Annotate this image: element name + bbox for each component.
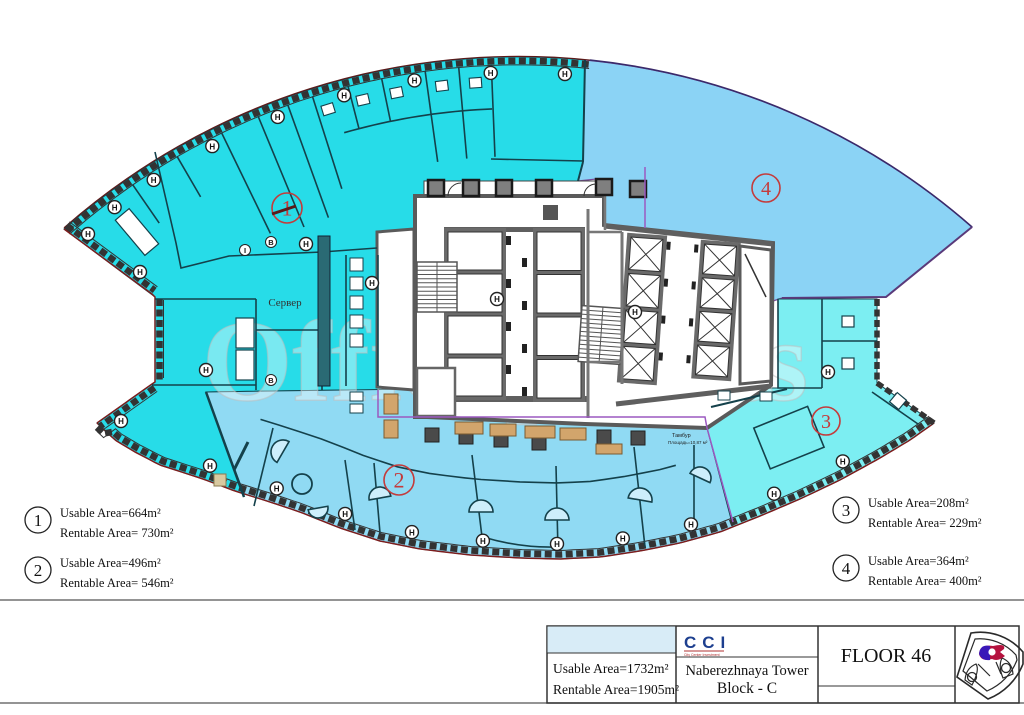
svg-text:Тамбур: Тамбур [672,433,691,439]
svg-text:Rentable Area= 400m²: Rentable Area= 400m² [868,574,982,588]
svg-text:2: 2 [394,467,405,492]
svg-text:H: H [480,537,486,546]
svg-text:H: H [118,417,124,426]
svg-text:FLOOR 46: FLOOR 46 [841,645,932,667]
svg-text:Rentable Area=1905m²: Rentable Area=1905m² [553,682,679,697]
svg-text:H: H [151,176,157,185]
svg-text:Rentable Area= 730m²: Rentable Area= 730m² [60,526,174,540]
svg-text:H: H [85,230,91,239]
svg-text:H: H [771,490,777,499]
svg-text:4: 4 [842,559,851,578]
svg-text:H: H [341,92,347,101]
svg-text:H: H [203,366,209,375]
svg-text:H: H [209,142,215,151]
svg-text:H: H [275,113,281,122]
svg-text:3: 3 [821,411,831,433]
svg-text:H: H [554,540,560,549]
svg-text:CCI: CCI [684,633,731,652]
svg-text:B: B [268,376,274,385]
svg-text:H: H [488,69,494,78]
svg-text:H: H [494,295,500,304]
svg-text:Naberezhnaya Tower: Naberezhnaya Tower [685,663,808,679]
svg-text:H: H [342,510,348,519]
svg-text:B: B [268,238,274,247]
svg-text:I: I [244,246,246,255]
svg-text:Сервер: Сервер [268,297,302,309]
svg-text:Usable Area=364m²: Usable Area=364m² [868,554,969,568]
svg-text:H: H [825,368,831,377]
svg-text:H: H [207,462,213,471]
svg-text:H: H [137,268,143,277]
svg-text:H: H [409,528,415,537]
svg-text:H: H [303,240,309,249]
svg-text:1: 1 [34,511,43,530]
svg-text:3: 3 [842,501,851,520]
svg-text:H: H [688,521,694,530]
svg-text:4: 4 [761,178,771,200]
svg-text:H: H [840,458,846,467]
svg-text:Usable Area=1732m²: Usable Area=1732m² [553,661,669,676]
svg-text:H: H [274,485,280,494]
svg-text:Block - C: Block - C [717,680,777,697]
svg-text:H: H [412,77,418,86]
svg-text:Rentable Area= 546m²: Rentable Area= 546m² [60,576,174,590]
svg-text:Площадь=10,87 м²: Площадь=10,87 м² [668,440,708,445]
svg-text:Usable Area=496m²: Usable Area=496m² [60,556,161,570]
svg-text:H: H [112,203,118,212]
svg-text:Usable Area=208m²: Usable Area=208m² [868,496,969,510]
svg-text:2: 2 [34,561,43,580]
svg-text:H: H [562,70,568,79]
svg-text:City Center Investment: City Center Investment [684,653,720,657]
svg-text:H: H [620,535,626,544]
svg-text:H: H [632,308,638,317]
svg-text:Usable Area=664m²: Usable Area=664m² [60,506,161,520]
svg-text:H: H [369,279,375,288]
svg-text:Rentable Area= 229m²: Rentable Area= 229m² [868,516,982,530]
